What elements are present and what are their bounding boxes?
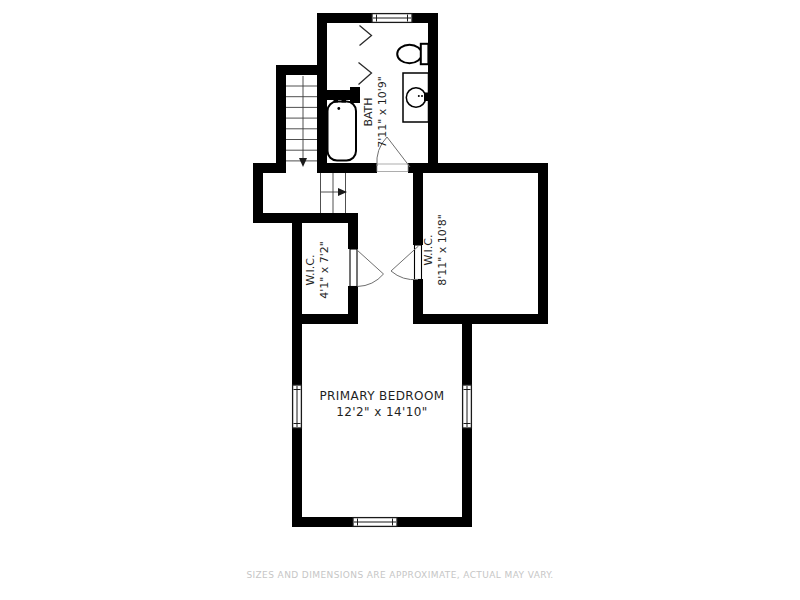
staircase-lower-flight (321, 173, 348, 213)
room-name: BATH (362, 52, 376, 172)
room-dims: 7'11" x 10'9" (376, 52, 390, 172)
staircase-upper-flight (286, 76, 317, 167)
disclaimer-text: SIZES AND DIMENSIONS ARE APPROXIMATE, AC… (0, 570, 800, 580)
window-bottom (353, 518, 397, 527)
bath-label: BATH 7'11" x 10'9" (362, 52, 390, 172)
room-dims: 8'11" x 10'8" (436, 190, 450, 310)
vanity-sink-icon (403, 73, 429, 122)
wic-left-door (350, 249, 384, 287)
tub-faucet (334, 97, 339, 103)
room-name: W.I.C. (422, 190, 436, 310)
wic-right-door (391, 245, 422, 280)
room-dims: 12'2" x 14'10" (272, 404, 492, 420)
bathtub (328, 97, 357, 161)
floor-plan-page: BATH 7'11" x 10'9" W.I.C. 4'1" x 7'2" W.… (0, 0, 800, 600)
room-name: PRIMARY BEDROOM (272, 388, 492, 404)
window-top (372, 14, 412, 23)
wic-left-label: W.I.C. 4'1" x 7'2" (304, 215, 332, 325)
sink-tap-dot (421, 95, 423, 97)
room-dims: 4'1" x 7'2" (318, 215, 332, 325)
primary-bedroom-label: PRIMARY BEDROOM 12'2" x 14'10" (272, 388, 492, 420)
sink-tap-dot (418, 95, 420, 97)
sink-faucet (424, 93, 429, 102)
floor-plan-drawing (0, 0, 800, 600)
room-name: W.I.C. (304, 215, 318, 325)
walls (253, 13, 548, 527)
stair-down-arrow (299, 158, 307, 167)
toilet-icon (397, 44, 428, 64)
wic-right-label: W.I.C. 8'11" x 10'8" (422, 190, 450, 310)
tub-faucet (342, 97, 347, 103)
tub-drain (337, 107, 340, 110)
